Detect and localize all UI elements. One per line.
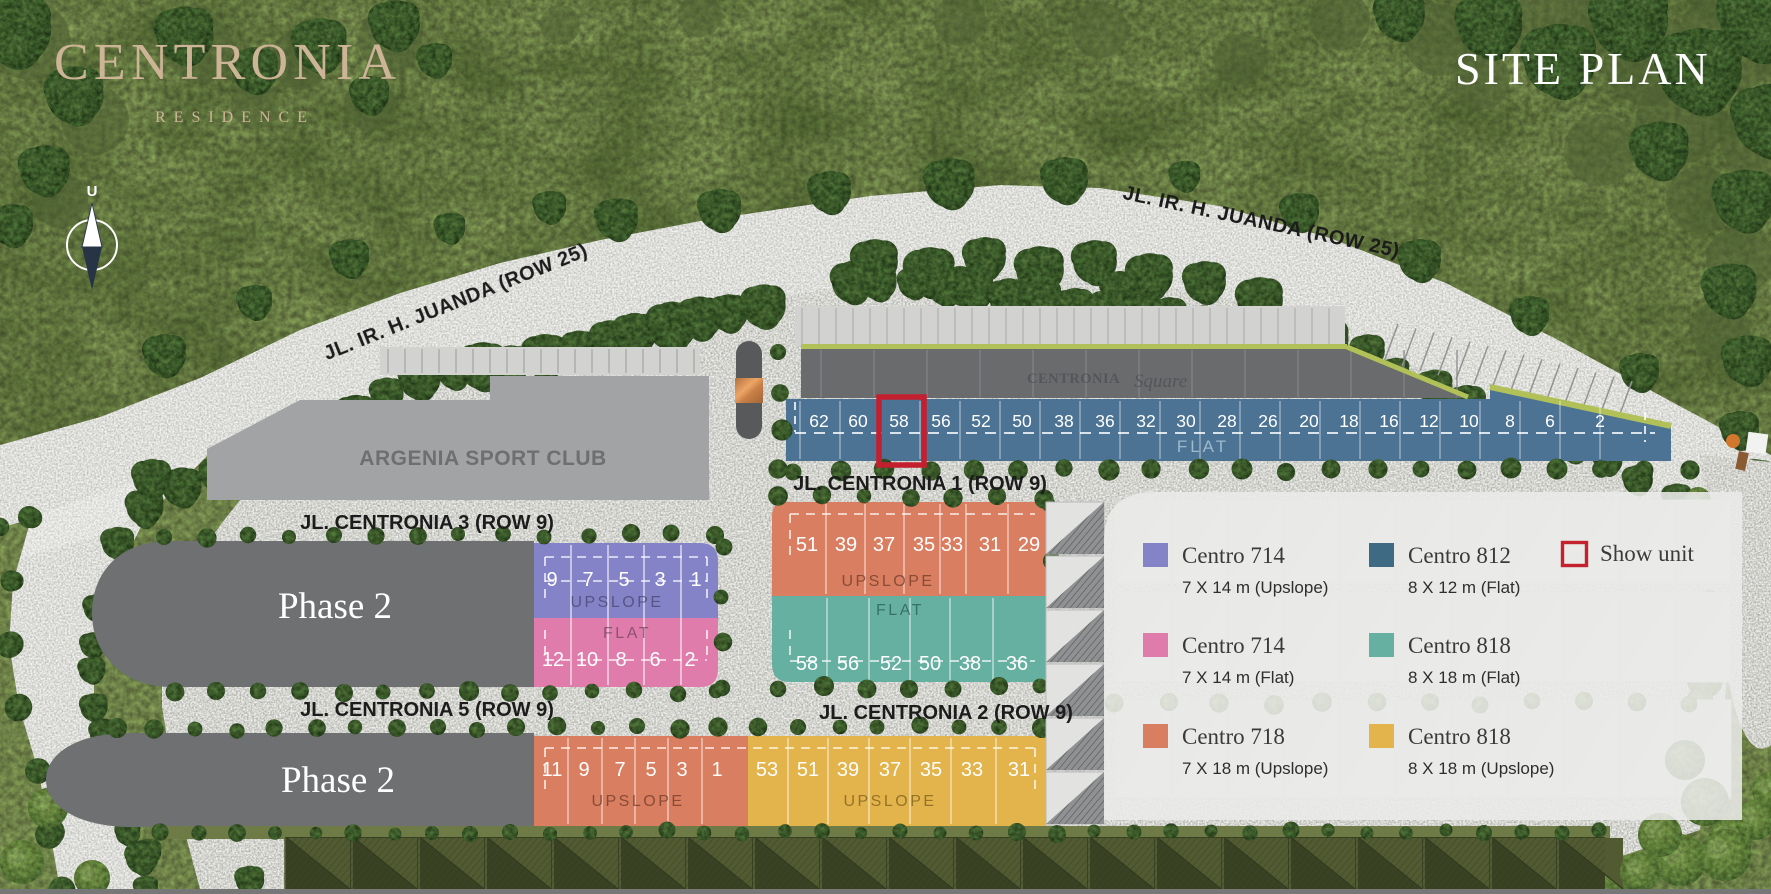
- svg-text:37: 37: [879, 759, 901, 781]
- svg-text:9: 9: [578, 759, 589, 781]
- svg-text:Centro 818: Centro 818: [1408, 633, 1511, 658]
- svg-text:6: 6: [1545, 411, 1555, 431]
- svg-text:3: 3: [676, 759, 687, 781]
- svg-text:33: 33: [961, 759, 983, 781]
- svg-text:50: 50: [919, 653, 941, 675]
- svg-text:Centro 714: Centro 714: [1182, 543, 1285, 568]
- svg-text:50: 50: [1012, 411, 1032, 431]
- svg-text:10: 10: [1459, 411, 1479, 431]
- svg-text:Centro 812: Centro 812: [1408, 543, 1511, 568]
- svg-text:2: 2: [1595, 411, 1605, 431]
- svg-text:CENTRONIA: CENTRONIA: [1027, 371, 1120, 387]
- svg-text:33: 33: [941, 534, 963, 556]
- svg-text:Phase 2: Phase 2: [281, 760, 395, 801]
- svg-text:7 X 14 m (Upslope): 7 X 14 m (Upslope): [1182, 578, 1328, 597]
- svg-text:FLAT: FLAT: [603, 625, 651, 642]
- svg-text:58: 58: [889, 411, 908, 431]
- svg-text:38: 38: [959, 653, 981, 675]
- svg-text:36: 36: [1095, 411, 1114, 431]
- svg-text:5: 5: [645, 759, 656, 781]
- svg-text:51: 51: [797, 759, 819, 781]
- svg-text:28: 28: [1217, 411, 1236, 431]
- svg-text:5: 5: [618, 569, 629, 591]
- svg-text:UPSLOPE: UPSLOPE: [570, 594, 663, 611]
- svg-text:9: 9: [546, 569, 557, 591]
- svg-text:18: 18: [1339, 411, 1358, 431]
- svg-text:29: 29: [1018, 534, 1040, 556]
- svg-text:56: 56: [837, 653, 859, 675]
- svg-text:37: 37: [873, 534, 895, 556]
- svg-text:31: 31: [979, 534, 1001, 556]
- svg-text:ARGENIA SPORT CLUB: ARGENIA SPORT CLUB: [359, 447, 606, 470]
- svg-text:62: 62: [809, 411, 828, 431]
- svg-text:60: 60: [848, 411, 868, 431]
- svg-text:32: 32: [1136, 411, 1155, 431]
- svg-text:35: 35: [920, 759, 942, 781]
- svg-text:39: 39: [837, 759, 859, 781]
- svg-text:JL. CENTRONIA 5 (ROW 9): JL. CENTRONIA 5 (ROW 9): [300, 699, 554, 721]
- svg-text:36: 36: [1006, 653, 1028, 675]
- svg-text:JL. CENTRONIA 3 (ROW 9): JL. CENTRONIA 3 (ROW 9): [300, 512, 554, 534]
- svg-text:8 X 18 m (Upslope): 8 X 18 m (Upslope): [1408, 759, 1554, 778]
- svg-text:Square: Square: [1134, 371, 1187, 392]
- svg-text:10: 10: [576, 649, 598, 671]
- svg-text:12: 12: [542, 649, 564, 671]
- svg-text:UPSLOPE: UPSLOPE: [841, 573, 934, 590]
- svg-text:Centro 818: Centro 818: [1408, 724, 1511, 749]
- svg-text:12: 12: [1419, 411, 1438, 431]
- svg-text:FLAT: FLAT: [876, 602, 924, 619]
- svg-text:1: 1: [711, 759, 722, 781]
- svg-text:SITE PLAN: SITE PLAN: [1455, 43, 1711, 94]
- svg-text:35: 35: [913, 534, 935, 556]
- svg-text:7: 7: [614, 759, 625, 781]
- svg-text:31: 31: [1008, 759, 1030, 781]
- svg-text:7 X 18 m (Upslope): 7 X 18 m (Upslope): [1182, 759, 1328, 778]
- svg-text:1: 1: [690, 569, 701, 591]
- svg-text:JL. CENTRONIA 2 (ROW 9): JL. CENTRONIA 2 (ROW 9): [819, 702, 1073, 724]
- svg-text:30: 30: [1176, 411, 1196, 431]
- svg-text:20: 20: [1299, 411, 1319, 431]
- svg-text:RESIDENCE: RESIDENCE: [155, 109, 315, 126]
- svg-text:8: 8: [615, 649, 626, 671]
- svg-text:7 X 14 m (Flat): 7 X 14 m (Flat): [1182, 668, 1294, 687]
- svg-text:56: 56: [931, 411, 950, 431]
- svg-text:8 X 12 m (Flat): 8 X 12 m (Flat): [1408, 578, 1520, 597]
- svg-text:Centro 714: Centro 714: [1182, 633, 1285, 658]
- svg-text:16: 16: [1379, 411, 1398, 431]
- svg-text:2: 2: [684, 649, 695, 671]
- svg-text:39: 39: [835, 534, 857, 556]
- svg-text:3: 3: [654, 569, 665, 591]
- svg-text:8 X 18 m (Flat): 8 X 18 m (Flat): [1408, 668, 1520, 687]
- svg-text:FLAT: FLAT: [1177, 437, 1229, 456]
- svg-text:53: 53: [756, 759, 778, 781]
- svg-text:UPSLOPE: UPSLOPE: [843, 793, 936, 810]
- svg-text:26: 26: [1258, 411, 1277, 431]
- svg-text:CENTRONIA: CENTRONIA: [54, 34, 401, 91]
- svg-text:52: 52: [971, 411, 990, 431]
- svg-text:UPSLOPE: UPSLOPE: [591, 793, 684, 810]
- svg-text:Show unit: Show unit: [1600, 541, 1695, 566]
- svg-text:38: 38: [1054, 411, 1073, 431]
- svg-text:Phase 2: Phase 2: [278, 586, 392, 627]
- svg-text:JL. CENTRONIA 1 (ROW 9): JL. CENTRONIA 1 (ROW 9): [793, 473, 1047, 495]
- svg-text:Centro 718: Centro 718: [1182, 724, 1285, 749]
- svg-text:6: 6: [649, 649, 660, 671]
- svg-text:51: 51: [796, 534, 818, 556]
- svg-text:52: 52: [880, 653, 902, 675]
- svg-text:58: 58: [796, 653, 818, 675]
- svg-text:7: 7: [582, 569, 593, 591]
- svg-text:8: 8: [1505, 411, 1515, 431]
- svg-text:U: U: [87, 183, 98, 200]
